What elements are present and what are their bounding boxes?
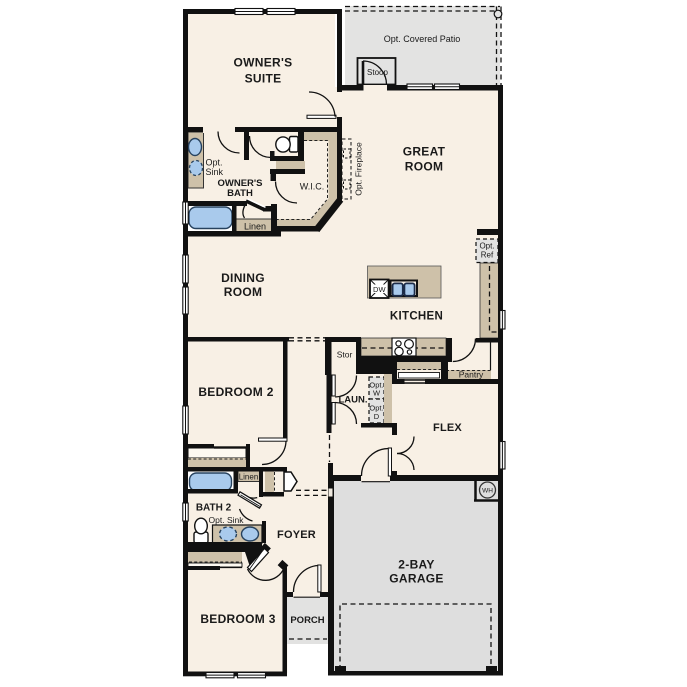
svg-text:Opt.: Opt. xyxy=(479,242,494,251)
svg-text:Ref: Ref xyxy=(481,251,494,260)
svg-text:LAUN.: LAUN. xyxy=(338,395,367,406)
svg-text:2-BAY: 2-BAY xyxy=(398,558,434,572)
svg-text:Opt. Fireplace: Opt. Fireplace xyxy=(354,142,364,196)
svg-text:Opt. Sink: Opt. Sink xyxy=(209,515,245,525)
svg-text:FOYER: FOYER xyxy=(277,529,316,541)
svg-text:WH: WH xyxy=(482,488,493,495)
svg-text:GARAGE: GARAGE xyxy=(389,572,443,586)
svg-text:W.I.C.: W.I.C. xyxy=(300,182,325,192)
svg-text:Sink: Sink xyxy=(206,167,224,177)
svg-text:W: W xyxy=(373,389,381,398)
svg-text:BEDROOM 2: BEDROOM 2 xyxy=(198,385,273,399)
svg-text:Opt. Covered Patio: Opt. Covered Patio xyxy=(384,34,461,44)
svg-text:FLEX: FLEX xyxy=(433,422,462,434)
svg-text:Opt.: Opt. xyxy=(206,158,223,168)
svg-text:Stor: Stor xyxy=(337,350,353,360)
svg-text:D: D xyxy=(374,412,380,421)
svg-text:BATH: BATH xyxy=(227,188,253,199)
svg-text:SUITE: SUITE xyxy=(245,72,282,86)
svg-text:Linen: Linen xyxy=(244,222,266,232)
svg-text:BATH 2: BATH 2 xyxy=(196,503,232,514)
svg-text:Linen: Linen xyxy=(239,473,259,482)
svg-text:BEDROOM 3: BEDROOM 3 xyxy=(200,612,275,626)
svg-text:ROOM: ROOM xyxy=(405,160,444,174)
svg-text:DW: DW xyxy=(373,285,386,294)
svg-text:OWNER'S: OWNER'S xyxy=(234,56,293,70)
svg-text:KITCHEN: KITCHEN xyxy=(390,311,443,323)
svg-text:DINING: DINING xyxy=(221,271,265,285)
svg-text:PORCH: PORCH xyxy=(290,615,324,626)
svg-text:ROOM: ROOM xyxy=(224,285,263,299)
svg-text:Pantry: Pantry xyxy=(459,370,484,380)
svg-text:GREAT: GREAT xyxy=(403,145,446,159)
svg-text:Stoop: Stoop xyxy=(367,68,388,77)
